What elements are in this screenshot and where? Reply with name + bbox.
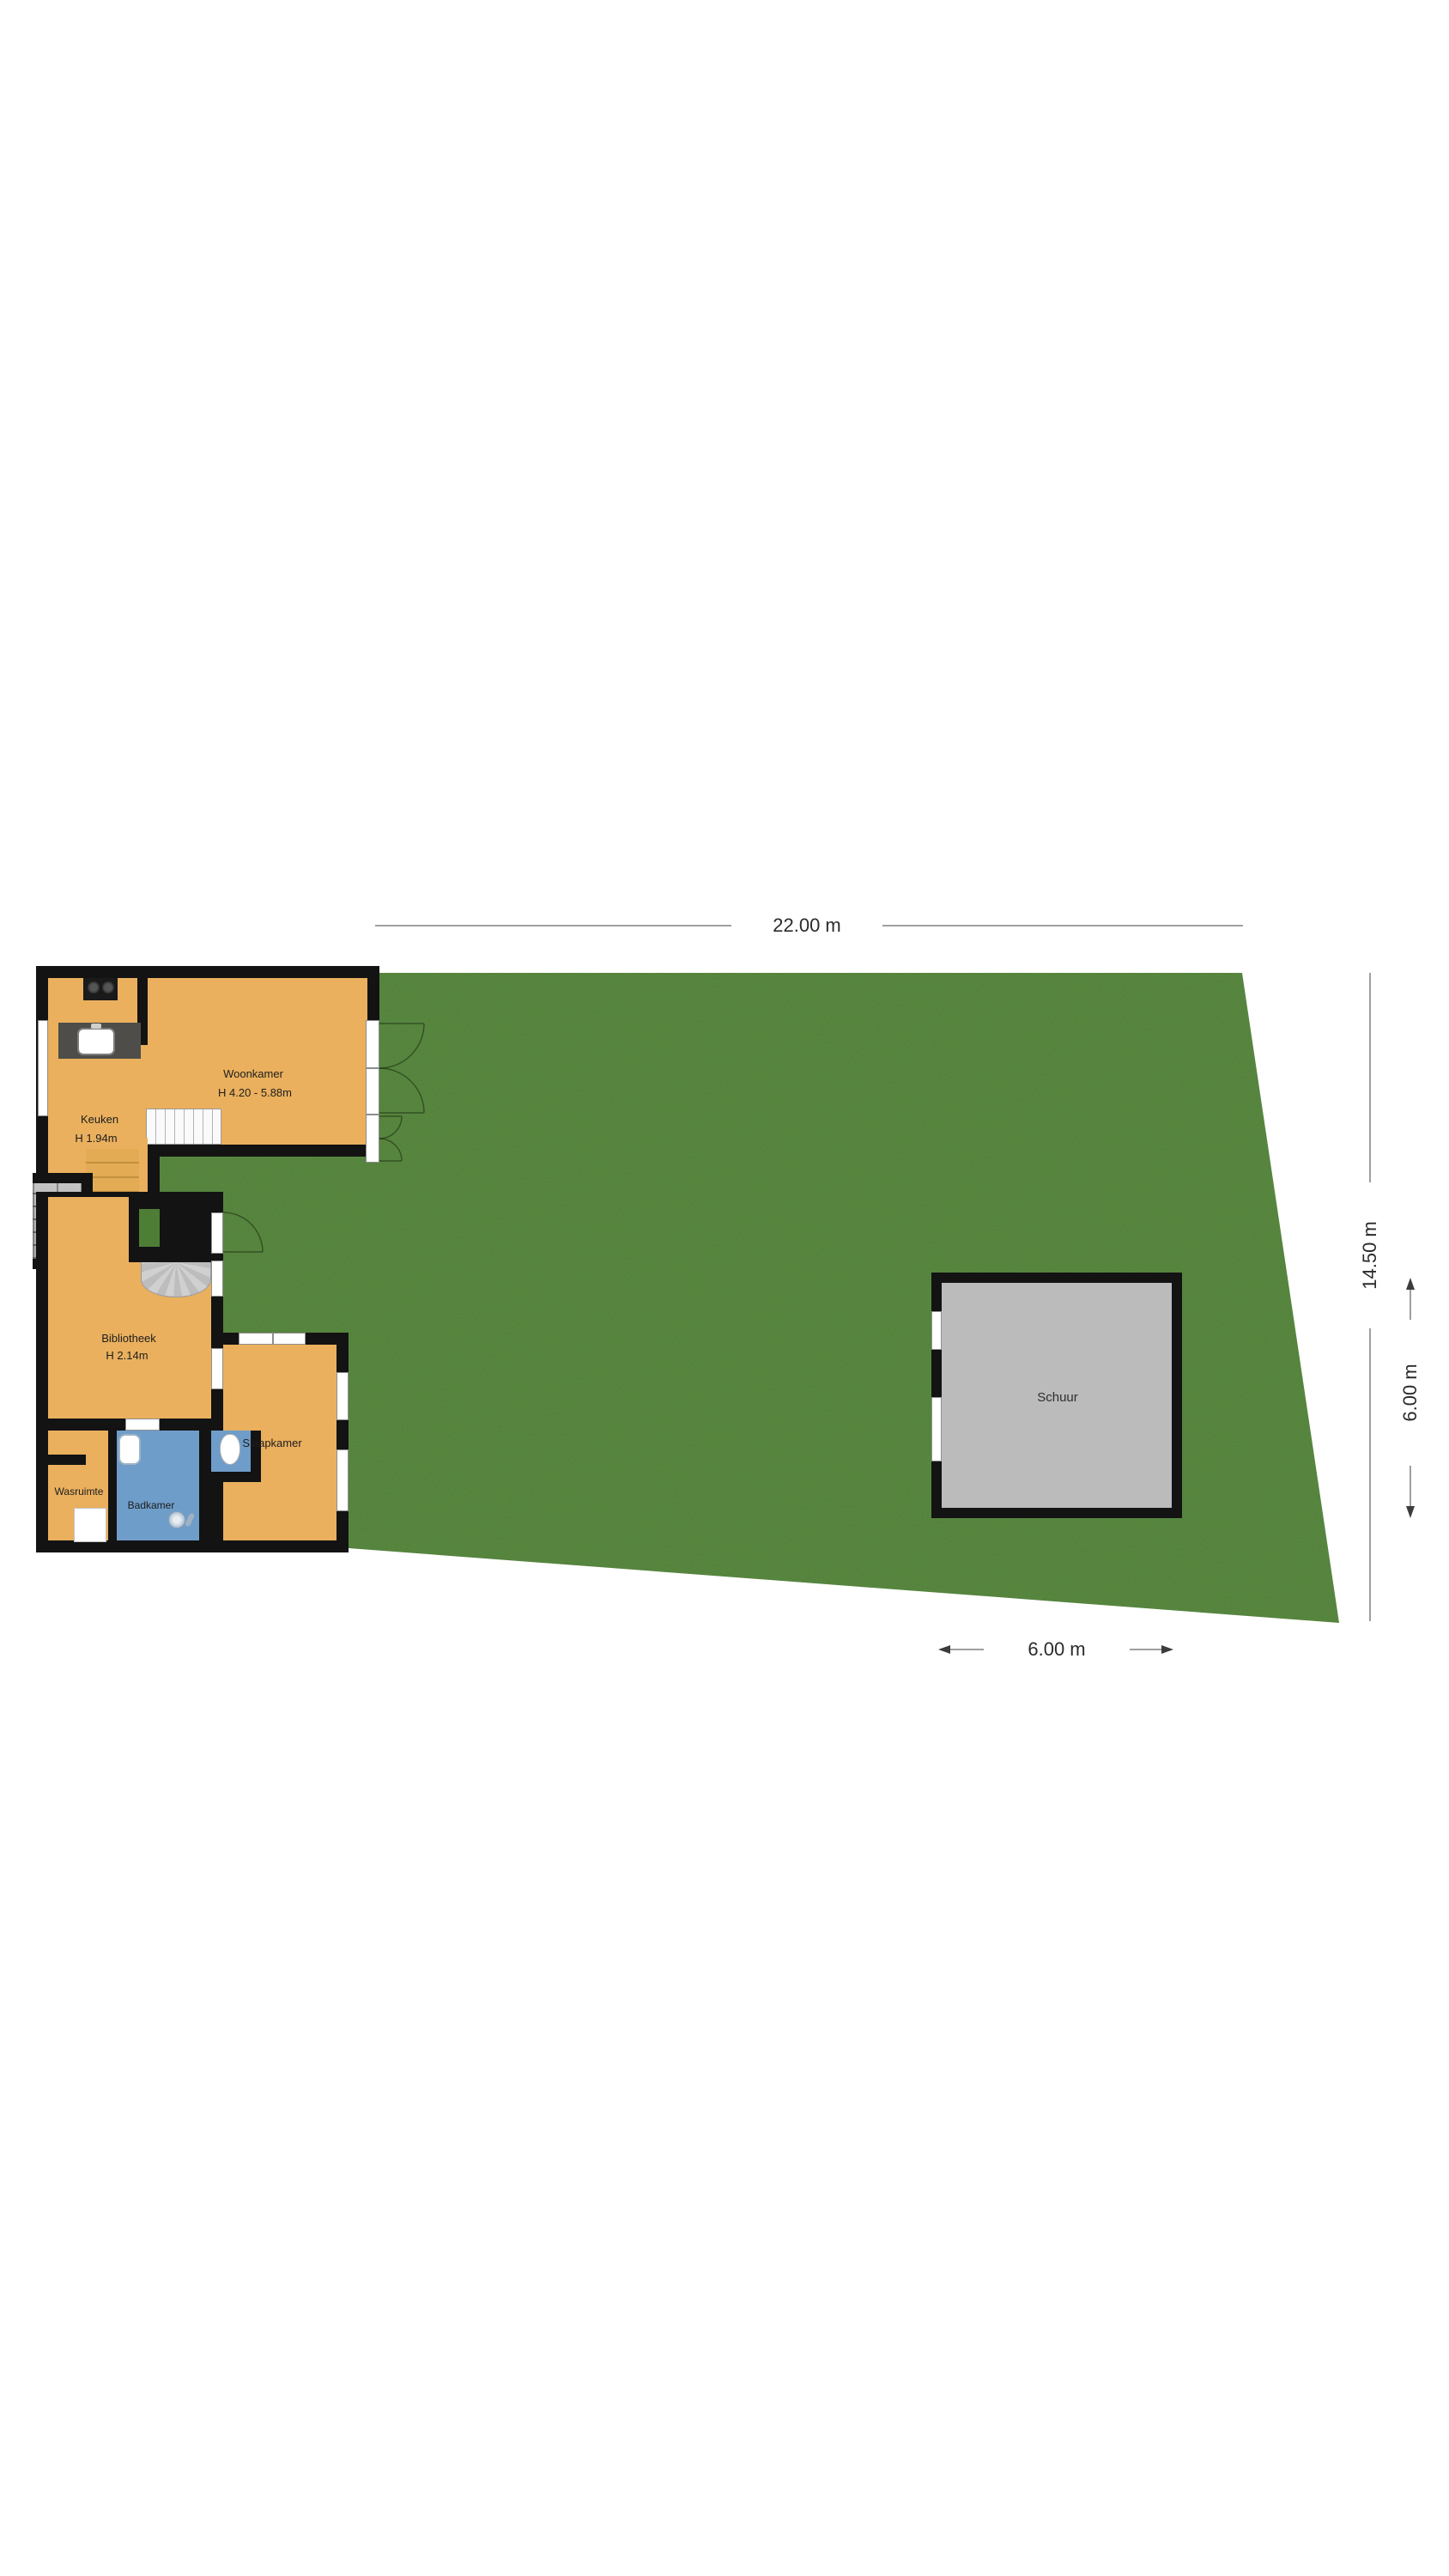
bibliotheek-garden-door xyxy=(211,1212,223,1254)
spiral-stairs xyxy=(141,1262,211,1297)
slaapkamer-east-window xyxy=(336,1449,349,1511)
wasruimte-label: Wasruimte xyxy=(6,1485,152,1498)
plot-width-dimension: 22.00 m xyxy=(734,914,880,937)
shower-head-icon xyxy=(168,1511,185,1528)
cooktop-burner-icon xyxy=(102,981,114,993)
kitchen-sink-icon xyxy=(77,1028,115,1055)
cooktop-burner-icon xyxy=(88,981,100,993)
badkamer-door xyxy=(125,1419,160,1431)
woonkamer-label: Woonkamer xyxy=(180,1067,326,1080)
woonkamer-garden-doors xyxy=(366,1020,379,1163)
woonkamer-height: H 4.20 - 5.88m xyxy=(182,1086,328,1099)
slaapkamer-east-window xyxy=(336,1372,349,1420)
shed-depth-dimension: 6.00 m xyxy=(1399,1320,1422,1466)
bibliotheek-east-window xyxy=(211,1261,223,1297)
shed-width-dimension: 6.00 m xyxy=(984,1638,1130,1661)
schuur-label: Schuur xyxy=(985,1391,1131,1404)
plot-depth-dimension: 14.50 m xyxy=(1359,1182,1381,1328)
slaapkamer-north-window xyxy=(239,1333,306,1345)
bibliotheek-label: Bibliotheek xyxy=(56,1332,202,1345)
bathroom-sink-icon xyxy=(118,1434,141,1465)
keuken-label: Keuken xyxy=(27,1113,173,1126)
floorplan-canvas: Woonkamer H 4.20 - 5.88m Keuken H 1.94m … xyxy=(0,0,1449,2576)
patio-patch xyxy=(139,1209,160,1247)
slaapkamer-label: Slaapkamer xyxy=(199,1437,345,1449)
kitchen-faucet-icon xyxy=(91,1024,101,1029)
schuur-west-window xyxy=(931,1311,942,1350)
keuken-height: H 1.94m xyxy=(23,1132,169,1145)
washing-machine-icon xyxy=(74,1508,106,1542)
slaapkamer-door xyxy=(211,1348,223,1389)
schuur-west-door xyxy=(931,1397,942,1461)
wasruimte-closet-wall xyxy=(48,1455,86,1465)
bibliotheek-height: H 2.14m xyxy=(54,1349,200,1362)
badkamer-label: Badkamer xyxy=(78,1499,224,1512)
keuken-west-window xyxy=(38,1020,48,1116)
